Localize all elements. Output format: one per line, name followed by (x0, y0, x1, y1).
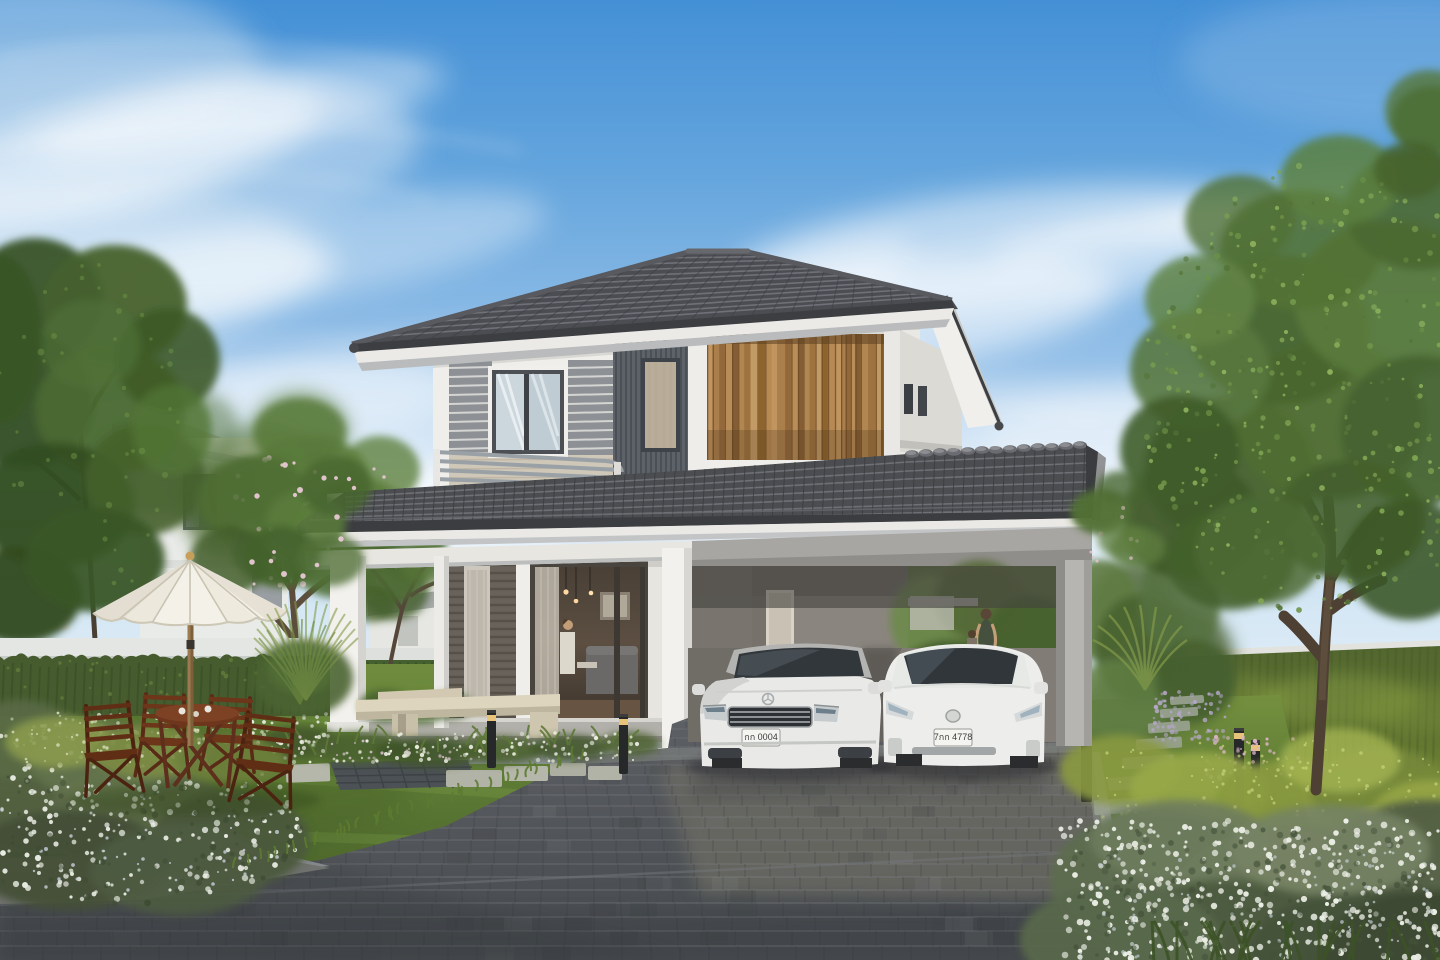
svg-text:กก 0004: กก 0004 (744, 732, 777, 742)
svg-text:7กก 4778: 7กก 4778 (934, 732, 972, 742)
